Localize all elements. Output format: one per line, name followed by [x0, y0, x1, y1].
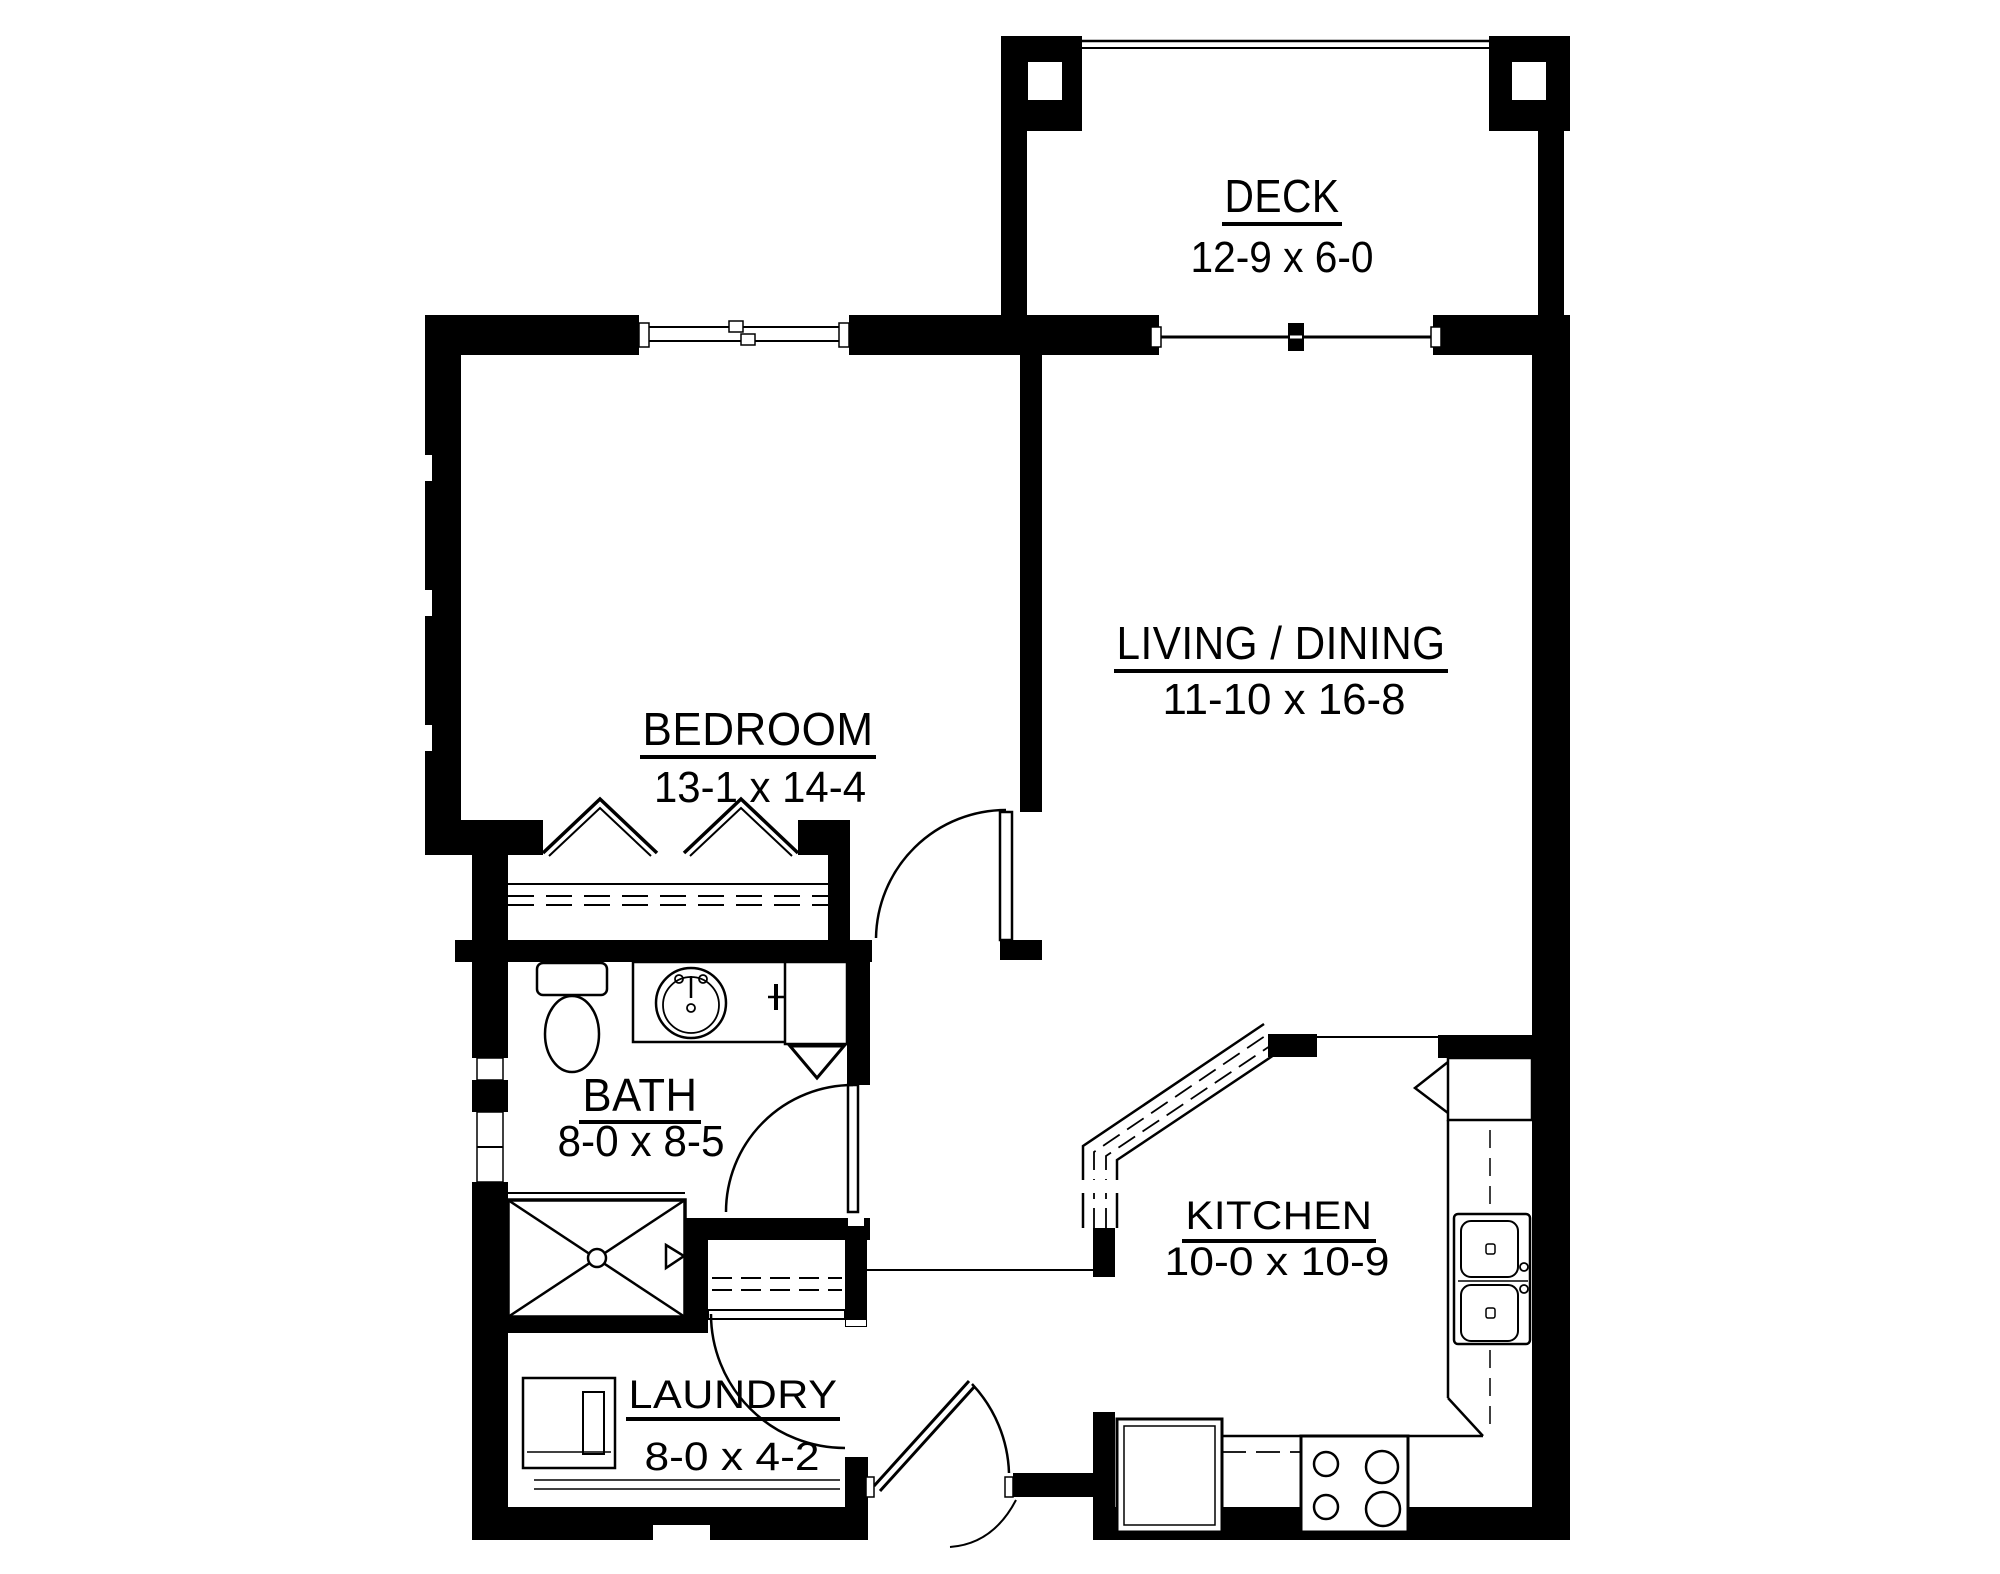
sink-drain-icon — [1486, 1308, 1495, 1318]
wall-notch — [425, 725, 432, 751]
bay-mullion-notch — [1079, 1180, 1121, 1193]
toilet-tank — [537, 963, 607, 995]
bottom-wall-segment — [653, 1507, 710, 1525]
deck-rail-wall-left — [1001, 131, 1027, 315]
refrigerator-fixture — [1117, 1419, 1222, 1532]
door-leaf — [1000, 812, 1012, 940]
window-jamb — [839, 323, 849, 347]
refrigerator-body — [1117, 1419, 1222, 1532]
canvas-background — [0, 0, 2000, 1574]
door-leaf — [848, 1085, 858, 1212]
bottom-wall-segment — [710, 1507, 868, 1540]
bedroom-bottom-wall — [798, 820, 850, 855]
kitchen-dims: 10-0 x 10-9 — [1165, 1240, 1390, 1284]
bath-dims: 8-0 x 8-5 — [558, 1117, 725, 1166]
wall-notch — [425, 590, 432, 616]
bath-cabinet — [785, 962, 847, 1044]
wall-notch — [425, 455, 432, 481]
washer-door — [583, 1392, 604, 1454]
door-jamb — [1431, 327, 1441, 347]
bath-label: BATH — [583, 1069, 698, 1121]
bedroom-bottom-wall — [425, 820, 543, 855]
closet-side-wall — [828, 853, 850, 942]
closet-door-leaf — [708, 1310, 845, 1319]
window-jamb — [639, 323, 649, 347]
bottom-wall-segment — [472, 1507, 653, 1540]
shower-fixture — [508, 1193, 685, 1317]
bay-counter-stub — [1093, 1228, 1115, 1277]
corner-cabinet-fixture — [1448, 1058, 1532, 1120]
left-wall-bedroom — [425, 315, 461, 855]
wall-notch — [653, 1525, 710, 1540]
laundry-label: LAUNDRY — [629, 1373, 838, 1417]
toilet-bowl — [545, 996, 599, 1072]
kitchen-top-wall — [1438, 1035, 1570, 1058]
window-sash-icon — [729, 321, 743, 332]
door-jamb-notch — [848, 1216, 864, 1226]
kitchen-sink-fixture — [1454, 1214, 1530, 1344]
left-wall-laundry — [472, 1182, 508, 1540]
right-wall — [1532, 355, 1570, 1540]
left-wall-bath — [472, 855, 508, 1058]
deck-label: DECK — [1225, 170, 1340, 222]
bath-lower-wall — [685, 1218, 870, 1240]
left-wall-bath — [472, 1080, 508, 1112]
bath-top-wall — [455, 940, 872, 962]
living-dining-label: LIVING / DINING — [1117, 617, 1446, 669]
bedroom-label: BEDROOM — [643, 703, 874, 755]
door-jamb — [866, 1477, 874, 1497]
deck-post-inset — [1028, 62, 1062, 100]
wall-stub — [1000, 940, 1042, 960]
window-sash-icon — [741, 334, 755, 345]
bath-window-icon — [477, 1058, 503, 1080]
door-jamb — [1151, 327, 1161, 347]
top-wall-segment — [1433, 315, 1570, 355]
bathroom-sink-fixture — [633, 962, 787, 1042]
bath-right-wall — [847, 962, 870, 1085]
top-wall-segment — [849, 315, 1159, 355]
stove-fixture — [1301, 1436, 1408, 1532]
floor-plan: BEDROOM 13-1 x 14-4 LIVING / DINING 11-1… — [0, 0, 2000, 1574]
living-dining-dims: 11-10 x 16-8 — [1163, 675, 1406, 724]
door-jamb-notch — [846, 1320, 866, 1326]
shower-drain-icon — [588, 1249, 606, 1267]
door-jamb — [1005, 1477, 1013, 1497]
washer-dryer-fixture — [523, 1378, 615, 1468]
laundry-dims: 8-0 x 4-2 — [645, 1435, 820, 1479]
laundry-top-wall — [472, 1317, 708, 1333]
bedroom-living-wall — [1020, 355, 1042, 812]
entry-wall — [1013, 1473, 1093, 1497]
closet-nook-wall — [845, 1240, 867, 1327]
deck-rail-wall-right — [1538, 127, 1564, 315]
deck-post-inset — [1512, 62, 1546, 100]
deck-dims: 12-9 x 6-0 — [1191, 233, 1374, 282]
floor-plan-page: BEDROOM 13-1 x 14-4 LIVING / DINING 11-1… — [0, 0, 2000, 1574]
kitchen-label: KITCHEN — [1186, 1194, 1373, 1238]
bedroom-dims: 13-1 x 14-4 — [654, 763, 866, 812]
stove-body — [1301, 1436, 1408, 1532]
sink-drain-icon — [1486, 1244, 1495, 1254]
